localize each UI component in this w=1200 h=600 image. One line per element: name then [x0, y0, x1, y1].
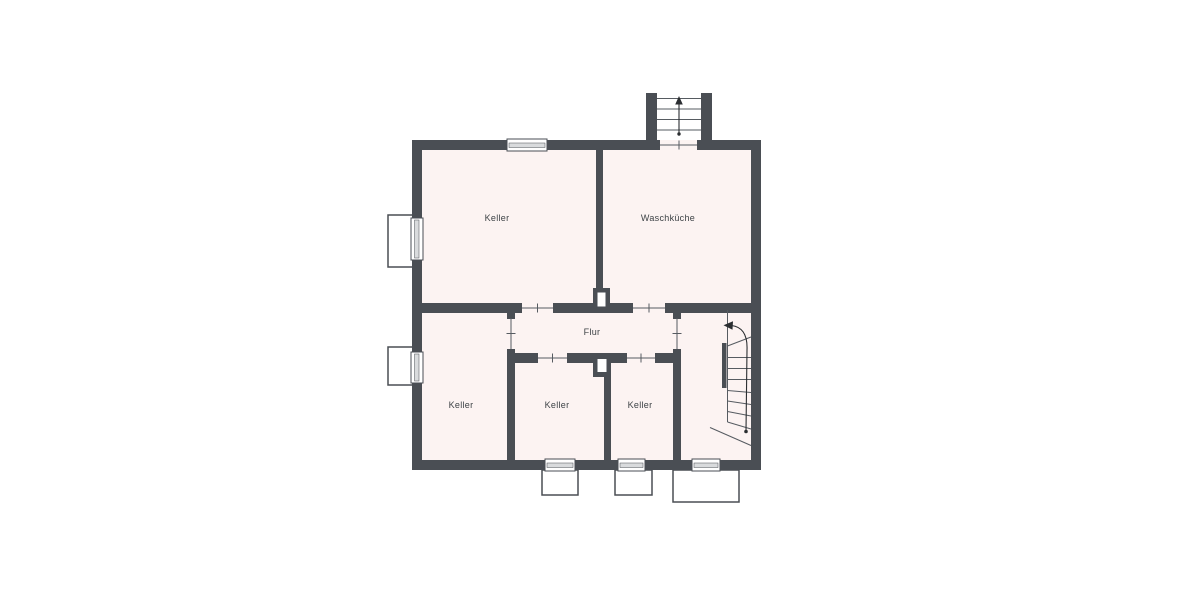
window-left-bottom [411, 352, 423, 383]
room-label-keller-bottom-right: Keller [628, 400, 653, 410]
light-well-bottom-1 [542, 470, 578, 495]
light-well-bottom-2 [615, 470, 652, 495]
wall-flur-top-3 [610, 303, 633, 313]
stair-handrail [722, 343, 727, 388]
stairwell-wall-left [646, 93, 657, 140]
chimney-bottom [593, 353, 611, 377]
light-well-left-bottom [388, 347, 413, 385]
wall-flur-top-4 [665, 303, 751, 313]
room-label-waschkueche: Waschküche [641, 213, 695, 223]
wall-right [751, 140, 761, 470]
room-label-keller-top-left: Keller [485, 213, 510, 223]
light-well-left-top [388, 215, 413, 267]
room-label-keller-bottom-middle: Keller [545, 400, 570, 410]
wall-keller-middle [604, 363, 611, 460]
wall-flur-bottom-3 [611, 353, 627, 363]
wall-flur-top-1 [422, 303, 522, 313]
wall-left [412, 140, 422, 470]
window-top [507, 139, 547, 151]
wall-flur-right [673, 349, 681, 460]
room-label-keller-bottom-left: Keller [449, 400, 474, 410]
wall-flur-bottom-2 [567, 353, 593, 363]
room-label-flur: Flur [584, 327, 601, 337]
chimney-top [593, 288, 610, 313]
window-bottom-2 [618, 459, 645, 471]
wall-flur-left [507, 349, 515, 460]
window-bottom-1 [545, 459, 575, 471]
light-well-bottom-3 [673, 470, 739, 502]
wall-keller-waschkueche [596, 150, 603, 288]
exterior-stairs [646, 93, 712, 140]
window-left-top [411, 218, 423, 260]
stairwell-wall-right [701, 93, 712, 140]
wall-flur-top-2 [553, 303, 593, 313]
floorplan-svg [0, 0, 1200, 600]
floorplan-canvas: Keller Waschküche Flur Keller Keller Kel… [0, 0, 1200, 600]
window-bottom-3 [692, 459, 720, 471]
